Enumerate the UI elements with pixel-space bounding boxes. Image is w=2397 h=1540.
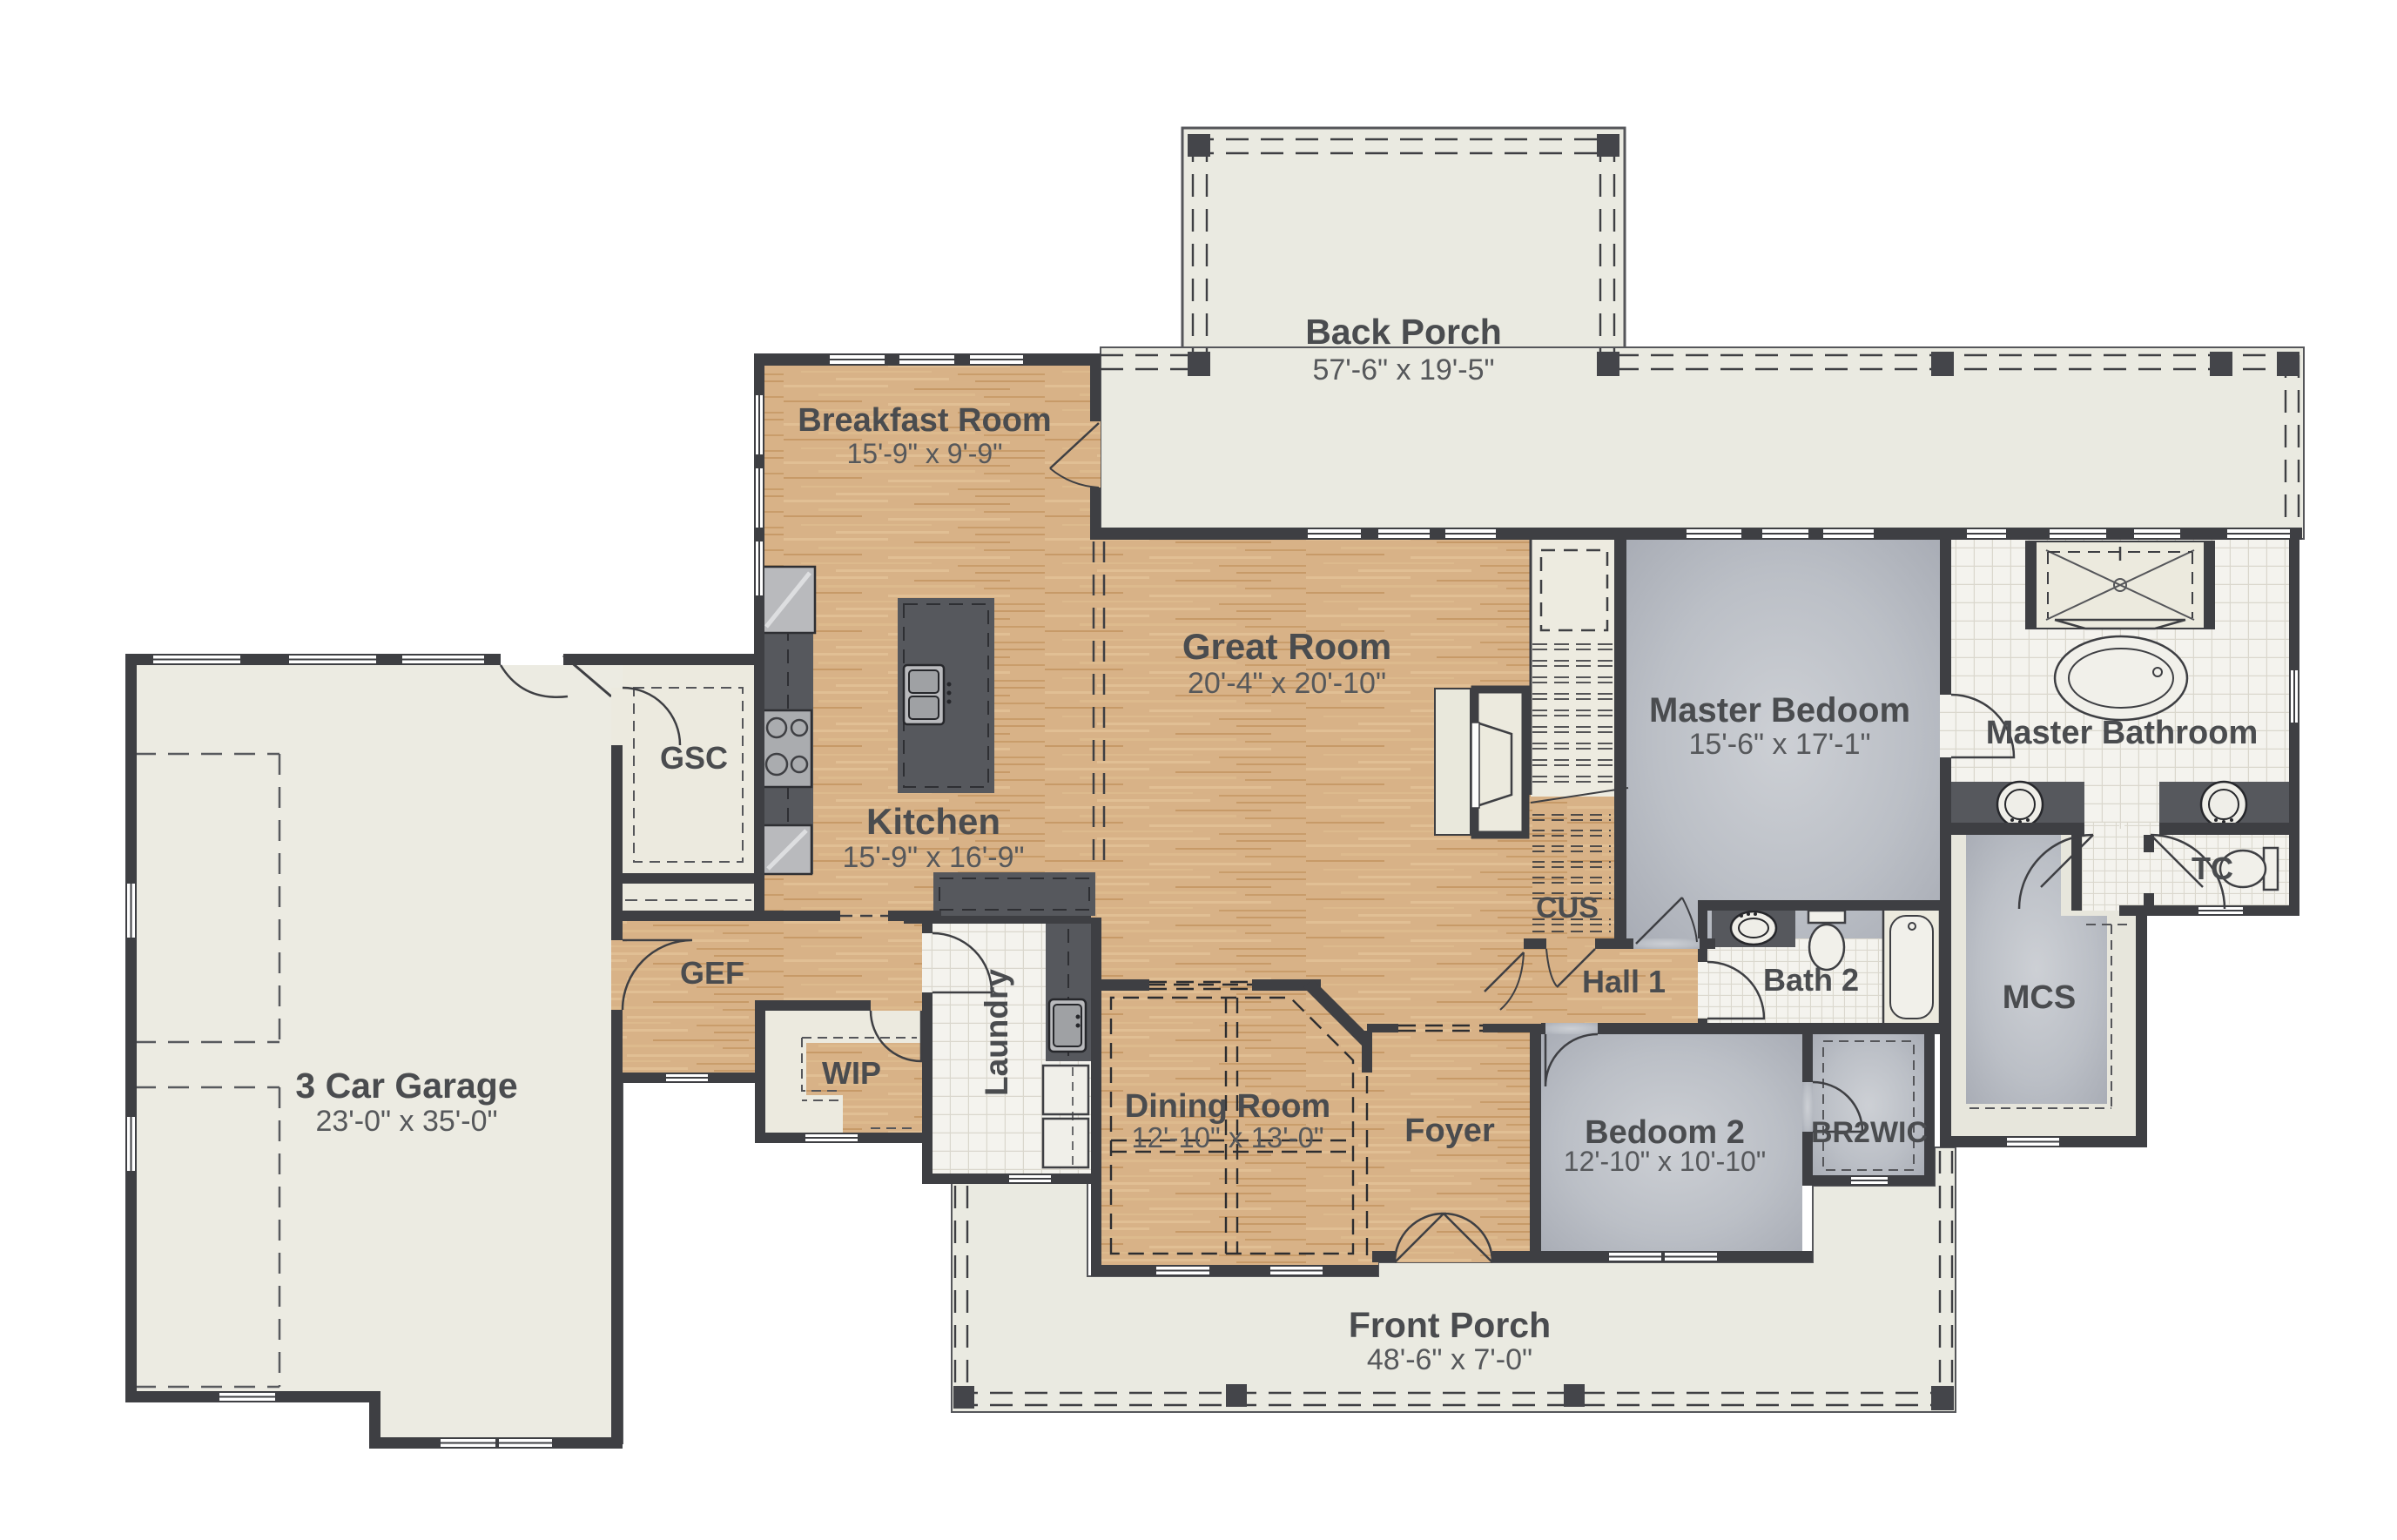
- svg-text:Hall 1: Hall 1: [1582, 964, 1666, 999]
- svg-text:12'-10" x 10'-10": 12'-10" x 10'-10": [1564, 1146, 1766, 1177]
- svg-text:Front Porch: Front Porch: [1349, 1305, 1551, 1345]
- svg-text:Bath 2: Bath 2: [1763, 962, 1859, 998]
- svg-text:Breakfast Room: Breakfast Room: [798, 402, 1051, 439]
- svg-text:15'-6" x 17'-1": 15'-6" x 17'-1": [1688, 728, 1870, 761]
- svg-text:CUS: CUS: [1536, 891, 1599, 925]
- svg-text:12'-10" x 13'-0": 12'-10" x 13'-0": [1131, 1121, 1323, 1153]
- svg-text:Master Bathroom: Master Bathroom: [1986, 715, 2259, 751]
- svg-text:23'-0" x 35'-0": 23'-0" x 35'-0": [315, 1105, 497, 1138]
- svg-text:Dining Room: Dining Room: [1125, 1088, 1330, 1125]
- svg-text:Back Porch: Back Porch: [1305, 312, 1502, 352]
- svg-text:MCS: MCS: [2003, 979, 2076, 1016]
- svg-text:57'-6" x 19'-5": 57'-6" x 19'-5": [1312, 353, 1494, 387]
- svg-text:Great Room: Great Room: [1182, 626, 1391, 667]
- svg-text:48'-6" x 7'-0": 48'-6" x 7'-0": [1367, 1343, 1532, 1376]
- svg-text:Master Bedoom: Master Bedoom: [1649, 691, 1910, 730]
- svg-text:GSC: GSC: [660, 740, 728, 776]
- svg-text:Laundry: Laundry: [979, 969, 1014, 1096]
- svg-text:15'-9" x 16'-9": 15'-9" x 16'-9": [842, 841, 1024, 874]
- svg-text:TC: TC: [2192, 851, 2233, 886]
- svg-text:Foyer: Foyer: [1404, 1113, 1495, 1149]
- svg-text:WIP: WIP: [822, 1055, 881, 1091]
- svg-text:15'-9" x 9'-9": 15'-9" x 9'-9": [846, 438, 1002, 469]
- svg-text:Kitchen: Kitchen: [866, 801, 1000, 842]
- svg-text:GEF: GEF: [680, 955, 744, 991]
- svg-text:3 Car Garage: 3 Car Garage: [295, 1066, 517, 1106]
- svg-text:BR2WIC: BR2WIC: [1811, 1116, 1928, 1149]
- svg-text:20'-4" x 20'-10": 20'-4" x 20'-10": [1188, 667, 1386, 700]
